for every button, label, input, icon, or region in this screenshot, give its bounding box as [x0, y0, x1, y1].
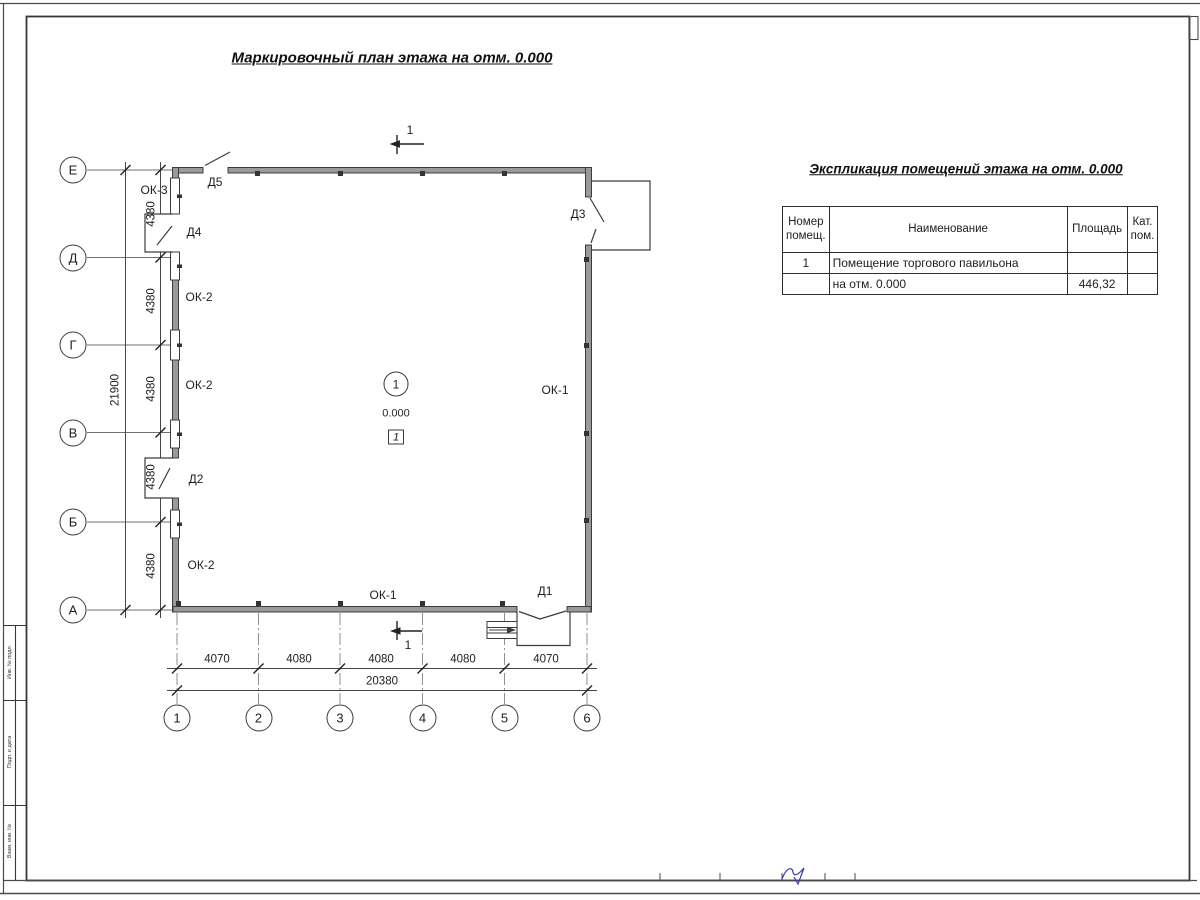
axis-bubble-a: А	[60, 597, 87, 624]
floor-type-mark: 1	[388, 430, 404, 445]
axis-label: А	[69, 603, 78, 618]
axis-label: Е	[69, 163, 78, 178]
window-label-ok3: ОК-3	[141, 184, 168, 196]
stamp-cell-label-1: Инв. № подл.	[7, 645, 13, 679]
door-d3	[590, 181, 650, 250]
axis-label: Г	[69, 338, 76, 353]
axis-label: 3	[336, 711, 343, 726]
walls	[173, 168, 592, 613]
door-label-d3: Д3	[571, 208, 586, 220]
cell-number: 1	[783, 253, 830, 274]
col-header-number: Номер помещ.	[783, 207, 830, 253]
axis-bubble-e: Е	[60, 157, 87, 184]
axis-bubble-d: Д	[60, 244, 87, 271]
axis-bubble-g: Г	[60, 332, 87, 359]
axis-label: 5	[501, 711, 508, 726]
dim-left-4: 4380	[146, 464, 158, 490]
dim-left-1: 4380	[146, 201, 158, 227]
table-row: 1 Помещение торгового павильона	[783, 253, 1158, 274]
axis-label: 4	[419, 711, 426, 726]
dim-bottom-total: 20380	[366, 676, 398, 688]
section-mark-top	[390, 135, 425, 154]
cell-cat	[1127, 274, 1158, 295]
col-header-name: Наименование	[829, 207, 1067, 253]
elevation-mark: 0.000	[382, 409, 410, 420]
cell-area	[1067, 253, 1127, 274]
window-label-ok2-3: ОК-2	[188, 559, 215, 571]
section-number-bottom: 1	[405, 639, 412, 651]
door-label-d5: Д5	[208, 176, 223, 188]
explication-title: Экспликация помещений этажа на отм. 0.00…	[809, 162, 1122, 176]
stamp-ticks	[660, 873, 855, 880]
axis-bubble-1: 1	[164, 705, 191, 732]
dim-bottom-4: 4080	[450, 654, 476, 666]
signature-mark	[782, 868, 804, 884]
col-header-area: Площадь	[1067, 207, 1127, 253]
dim-left-total: 21900	[110, 374, 122, 406]
axis-label: Д	[69, 250, 78, 265]
axis-label: 6	[583, 711, 590, 726]
axis-label: Б	[69, 515, 78, 530]
stamp-cell-label-2: Подп. и дата	[7, 736, 13, 768]
cell-number	[783, 274, 830, 295]
cell-name: Помещение торгового павильона	[829, 253, 1067, 274]
window-label-ok1-bottom: ОК-1	[370, 589, 397, 601]
axis-bubble-2: 2	[245, 705, 272, 732]
cell-area: 446,32	[1067, 274, 1127, 295]
axis-label: В	[69, 425, 78, 440]
explication-table: Номер помещ. Наименование Площадь Кат. п…	[782, 206, 1158, 295]
dim-left-2: 4380	[146, 288, 158, 314]
door-label-d4: Д4	[187, 226, 202, 238]
door-label-d2: Д2	[189, 473, 204, 485]
axis-bubble-5: 5	[491, 705, 518, 732]
dim-bottom-5: 4070	[533, 654, 559, 666]
axis-bubble-b: Б	[60, 509, 87, 536]
window-label-ok2-1: ОК-2	[186, 291, 213, 303]
dim-left-3: 4380	[146, 376, 158, 402]
door-d1	[487, 611, 570, 646]
axis-bubble-3: 3	[327, 705, 354, 732]
stamp-cell-label-3: Взам. инв. №	[7, 824, 13, 858]
door-label-d1: Д1	[538, 585, 553, 597]
plan-title: Маркировочный план этажа на отм. 0.000	[232, 51, 553, 66]
wall-window-marks	[176, 171, 589, 606]
room-number: 1	[393, 377, 400, 391]
col-header-cat: Кат. пом.	[1127, 207, 1158, 253]
cell-name: на отм. 0.000	[829, 274, 1067, 295]
room-number-bubble: 1	[384, 372, 409, 397]
door-d5	[205, 152, 230, 166]
dim-bottom-3: 4080	[368, 654, 394, 666]
window-label-ok1-right: ОК-1	[542, 384, 569, 396]
dimension-ticks	[121, 165, 593, 696]
dim-bottom-1: 4070	[204, 654, 230, 666]
cell-cat	[1127, 253, 1158, 274]
axis-label: 2	[255, 711, 262, 726]
drawing-sheet: Маркировочный план этажа на отм. 0.000 Э…	[0, 0, 1200, 900]
floor-type-number: 1	[393, 431, 399, 443]
plan-linework	[0, 0, 1200, 900]
axis-bubble-6: 6	[574, 705, 601, 732]
dim-left-5: 4380	[146, 553, 158, 579]
dim-bottom-2: 4080	[286, 654, 312, 666]
axis-label: 1	[173, 711, 180, 726]
window-label-ok2-2: ОК-2	[186, 379, 213, 391]
section-number-top: 1	[407, 124, 414, 136]
table-row: на отм. 0.000 446,32	[783, 274, 1158, 295]
axis-bubble-4: 4	[409, 705, 436, 732]
axis-bubble-v: В	[60, 419, 87, 446]
